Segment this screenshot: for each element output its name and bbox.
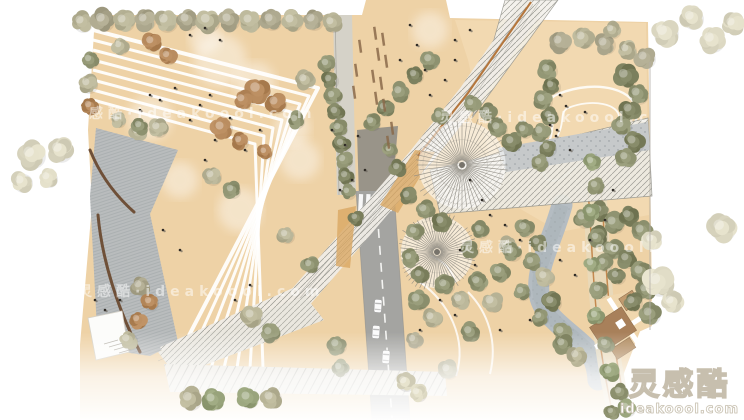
watermark-tile: 灵感酷·ideakoool.com [70,105,317,122]
tree [651,20,679,48]
site-plan-drawing: 灵感酷·ideakoool.com灵感酷·ideakoool.com灵感酷·id… [0,0,744,420]
tree [90,7,115,32]
tree [303,10,324,31]
tree [17,139,46,171]
tree [679,5,704,30]
tree [699,27,725,54]
watermark-domain-text: ideakoool.com [620,403,739,416]
watermark-tile: 灵感酷·ideakoool.com [78,283,325,300]
landscape-masterplan-rendering: 灵感酷·ideakoool.com灵感酷·ideakoool.com灵感酷·id… [0,0,744,420]
tree [706,213,737,243]
car [374,299,382,312]
corner-watermark: 灵感酷 ideakoool.com [620,370,739,416]
watermark-tile: 灵感酷·ideakoool.com [460,239,707,256]
tree [582,204,600,222]
tree [11,171,33,193]
watermark-brand-text: 灵感酷 [620,370,739,401]
tree [79,74,99,94]
tree [722,12,744,35]
tree [589,282,608,300]
tree [39,168,58,188]
tree [223,181,241,199]
tree [259,9,282,31]
tree [48,137,74,163]
watermark-tile: 灵感酷·ideakoool.com [440,109,687,126]
